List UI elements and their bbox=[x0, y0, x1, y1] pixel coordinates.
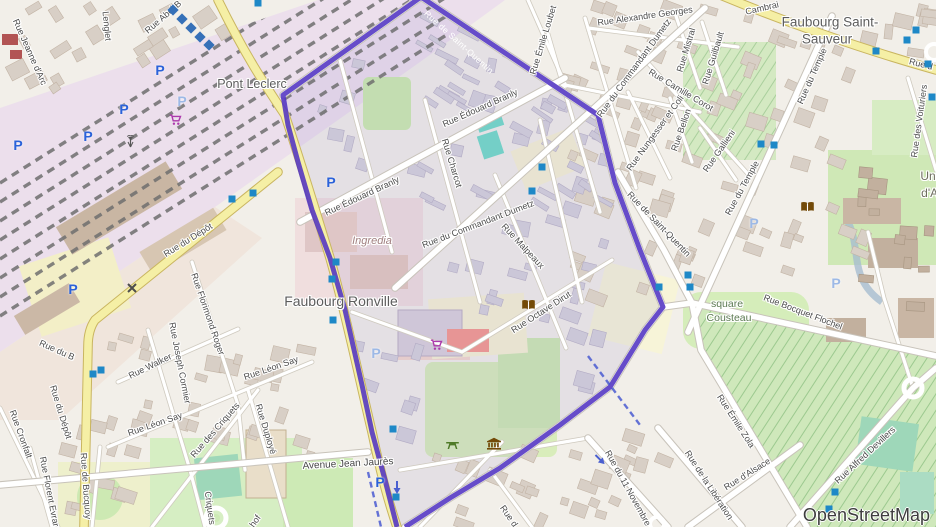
parking-icon: P bbox=[119, 101, 128, 119]
place-label: Pont Leclerc bbox=[217, 77, 286, 91]
place-label: d'Artois bbox=[921, 186, 936, 200]
transit-stop-marker bbox=[873, 48, 880, 55]
osm-map: Rue Jeanne d'ArcLengletRue Abel BRue Ale… bbox=[0, 0, 936, 527]
transit-stop-marker bbox=[330, 317, 337, 324]
place-label: Sauveur bbox=[802, 32, 852, 47]
transit-stop-marker bbox=[255, 0, 262, 7]
transit-stop-marker bbox=[929, 94, 936, 101]
parking-icon: P bbox=[375, 474, 384, 492]
parking-icon: P bbox=[83, 128, 92, 146]
transit-stop-marker bbox=[529, 188, 536, 195]
place-label: Cousteau bbox=[707, 312, 752, 324]
transit-stop-marker bbox=[539, 164, 546, 171]
transit-stop-marker bbox=[250, 190, 257, 197]
place-label: Faubourg Saint- bbox=[782, 15, 879, 30]
parking-icon: P bbox=[13, 137, 22, 155]
transit-stop-marker bbox=[90, 371, 97, 378]
transit-stop-marker bbox=[393, 494, 400, 501]
transit-stop-marker bbox=[390, 426, 397, 433]
parking-icon: P bbox=[326, 174, 335, 192]
transit-stop-marker bbox=[758, 141, 765, 148]
transit-stop-marker bbox=[333, 259, 340, 266]
osm-attribution[interactable]: OpenStreetMap bbox=[803, 505, 930, 526]
transit-stop-marker bbox=[925, 61, 932, 68]
place-label: Faubourg Ronville bbox=[284, 293, 398, 309]
transit-stop-marker bbox=[771, 142, 778, 149]
transit-stop-marker bbox=[329, 276, 336, 283]
place-label: Université bbox=[920, 169, 936, 183]
parking-icon: P bbox=[155, 62, 164, 80]
parking-icon: P bbox=[749, 215, 758, 233]
transit-stop-marker bbox=[832, 489, 839, 496]
transit-stop-marker bbox=[687, 284, 694, 291]
place-label: square bbox=[711, 298, 743, 310]
transit-stop-marker bbox=[904, 37, 911, 44]
transit-stop-marker bbox=[685, 272, 692, 279]
parking-icon: P bbox=[177, 93, 186, 111]
parking-icon: P bbox=[68, 281, 77, 299]
map-canvas bbox=[0, 0, 936, 527]
parking-icon: P bbox=[831, 275, 840, 293]
place-label: Ingredia bbox=[352, 235, 392, 247]
transit-stop-marker bbox=[656, 284, 663, 291]
parking-icon: P bbox=[371, 345, 380, 363]
transit-stop-marker bbox=[913, 27, 920, 34]
transit-stop-marker bbox=[98, 367, 105, 374]
transit-stop-marker bbox=[229, 196, 236, 203]
